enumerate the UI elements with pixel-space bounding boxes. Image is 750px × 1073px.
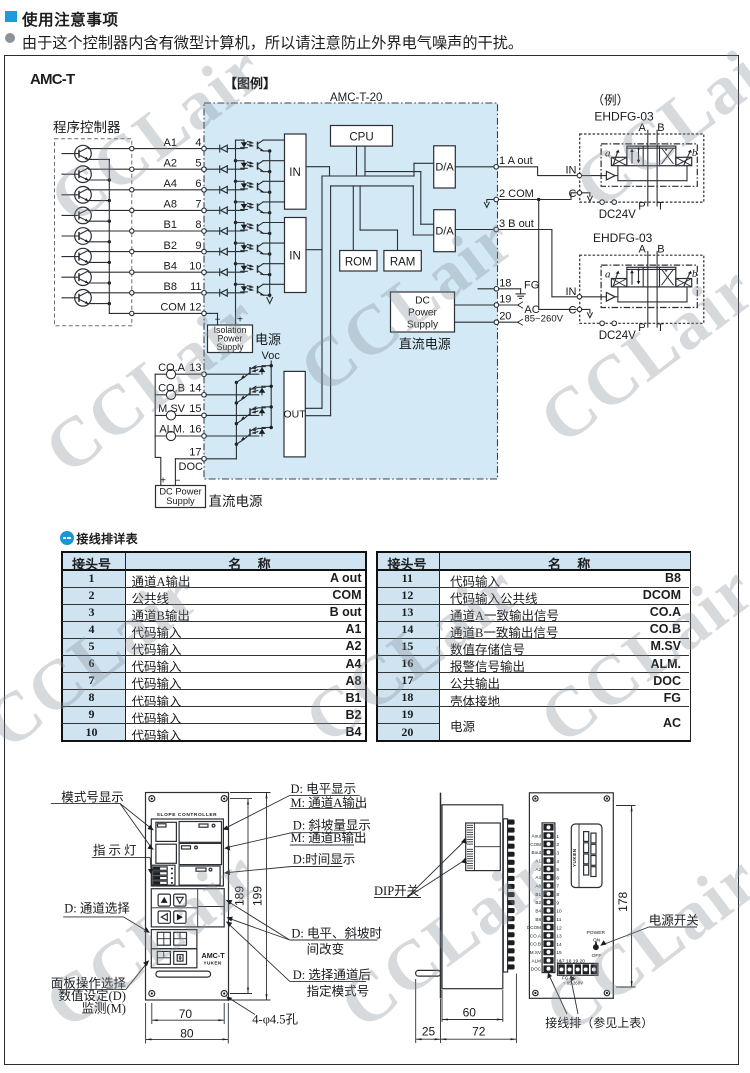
svg-text:IN: IN <box>566 165 577 177</box>
svg-text:数值设定(D): 数值设定(D) <box>59 988 126 1003</box>
svg-text:D/A: D/A <box>435 225 454 237</box>
svg-text:+: + <box>160 475 166 486</box>
svg-text:9: 9 <box>556 900 559 906</box>
svg-text:程序控制器: 程序控制器 <box>53 120 121 135</box>
svg-text:189: 189 <box>233 886 247 906</box>
svg-text:A8: A8 <box>535 884 541 889</box>
svg-text:85~260V: 85~260V <box>524 314 563 325</box>
svg-text:Supply: Supply <box>407 320 439 331</box>
svg-text:T: T <box>657 201 664 213</box>
svg-text:OFF: OFF <box>592 953 602 959</box>
svg-text:ALM.: ALM. <box>159 424 185 436</box>
svg-text:指示灯: 指示灯 <box>93 843 140 858</box>
svg-text:B2: B2 <box>535 900 541 905</box>
svg-text:3: 3 <box>556 850 559 856</box>
svg-text:B1: B1 <box>535 892 541 897</box>
svg-text:指定模式号: 指定模式号 <box>307 984 370 999</box>
svg-text:60: 60 <box>463 1006 477 1020</box>
svg-text:20: 20 <box>499 311 511 323</box>
svg-text:COM: COM <box>530 842 541 847</box>
svg-text:199: 199 <box>251 886 265 906</box>
svg-text:80: 80 <box>180 1026 194 1040</box>
svg-text:70: 70 <box>179 1007 193 1021</box>
svg-text:FG: FG <box>524 280 539 292</box>
svg-text:16: 16 <box>189 424 201 436</box>
svg-text:13: 13 <box>189 362 201 374</box>
svg-text:25: 25 <box>422 1025 436 1039</box>
svg-text:6: 6 <box>195 178 201 190</box>
svg-text:B8: B8 <box>164 281 177 293</box>
svg-text:18: 18 <box>499 277 511 289</box>
svg-text:b: b <box>692 268 698 280</box>
svg-text:DC24V: DC24V <box>599 330 636 342</box>
svg-text:a: a <box>605 148 611 160</box>
svg-text:YUKEN: YUKEN <box>204 961 222 966</box>
svg-text:7: 7 <box>195 199 201 211</box>
svg-text:直流电源: 直流电源 <box>399 337 451 352</box>
svg-text:B8: B8 <box>535 917 541 922</box>
svg-text:4: 4 <box>556 859 559 865</box>
svg-text:15: 15 <box>189 403 201 415</box>
svg-text:8: 8 <box>556 892 559 898</box>
svg-text:M.SV: M.SV <box>158 403 186 415</box>
svg-text:9: 9 <box>195 240 201 252</box>
svg-text:13: 13 <box>556 934 562 940</box>
svg-text:DC Power: DC Power <box>159 486 201 496</box>
svg-text:P: P <box>638 201 645 213</box>
svg-text:7: 7 <box>556 884 559 890</box>
svg-text:电源开关: 电源开关 <box>649 913 699 927</box>
svg-text:A2: A2 <box>164 157 177 169</box>
svg-text:2 COM: 2 COM <box>499 188 534 200</box>
svg-text:POWER: POWER <box>587 930 606 936</box>
svg-text:M: 通道B输出: M: 通道B输出 <box>291 830 367 845</box>
svg-text:B: B <box>657 243 664 255</box>
svg-text:C: C <box>569 304 577 316</box>
svg-text:COM: COM <box>160 302 186 314</box>
svg-text:2: 2 <box>556 842 559 848</box>
svg-text:4-φ4.5孔: 4-φ4.5孔 <box>252 1013 298 1027</box>
svg-text:A: A <box>639 243 647 255</box>
svg-text:D: 电平、斜坡时: D: 电平、斜坡时 <box>291 927 382 941</box>
svg-text:D:时间显示: D:时间显示 <box>293 853 356 867</box>
svg-text:12: 12 <box>556 925 562 931</box>
svg-text:P: P <box>638 322 645 334</box>
svg-text:B4: B4 <box>164 260 177 272</box>
svg-text:DOC: DOC <box>531 967 542 972</box>
svg-text:DOC: DOC <box>179 461 204 473</box>
svg-text:CO.A: CO.A <box>530 933 542 938</box>
svg-text:M: 通道A输出: M: 通道A输出 <box>291 795 368 810</box>
svg-text:10: 10 <box>556 909 562 915</box>
svg-text:模式号显示: 模式号显示 <box>61 790 124 804</box>
svg-text:B1: B1 <box>164 219 177 231</box>
svg-text:监测(M): 监测(M) <box>81 1002 125 1016</box>
svg-text:5: 5 <box>556 867 559 873</box>
svg-text:M.SV: M.SV <box>530 950 542 955</box>
svg-text:11: 11 <box>190 281 201 293</box>
svg-text:D/A: D/A <box>435 162 454 174</box>
svg-text:+: + <box>237 314 243 325</box>
svg-text:D: 通道选择: D: 通道选择 <box>64 901 130 915</box>
svg-text:ROM: ROM <box>345 257 372 269</box>
svg-text:CO.A: CO.A <box>158 362 186 374</box>
svg-text:DCOM: DCOM <box>527 925 541 930</box>
svg-text:A8: A8 <box>164 199 177 211</box>
svg-text:8: 8 <box>195 219 201 231</box>
svg-text:1: 1 <box>556 834 559 840</box>
svg-text:A: A <box>639 122 647 134</box>
svg-text:*: * <box>637 267 640 276</box>
svg-text:−: − <box>215 314 221 325</box>
svg-text:72: 72 <box>472 1025 486 1039</box>
svg-text:Supply: Supply <box>217 342 244 352</box>
svg-text:17: 17 <box>189 446 201 458</box>
svg-text:10: 10 <box>189 260 201 272</box>
svg-text:A2: A2 <box>535 867 541 872</box>
svg-text:A4: A4 <box>164 178 177 190</box>
svg-text:C: C <box>569 188 577 200</box>
svg-text:RAM: RAM <box>390 257 416 269</box>
svg-text:*: * <box>664 268 667 277</box>
svg-text:IN: IN <box>289 167 301 179</box>
svg-text:14: 14 <box>189 382 201 394</box>
svg-text:B2: B2 <box>164 240 177 252</box>
svg-text:4: 4 <box>195 137 201 149</box>
svg-text:14: 14 <box>556 942 562 948</box>
svg-text:A1: A1 <box>164 137 177 149</box>
svg-text:Bout: Bout <box>532 850 542 855</box>
svg-text:SLOPE CONTROLLER: SLOPE CONTROLLER <box>157 812 218 818</box>
svg-text:Voc: Voc <box>262 350 281 362</box>
svg-text:~ 85-260V: ~ 85-260V <box>563 980 583 985</box>
svg-text:IN: IN <box>289 251 301 263</box>
svg-text:D: 选择通道后: D: 选择通道后 <box>293 968 371 982</box>
svg-text:6: 6 <box>556 875 559 881</box>
svg-text:Power: Power <box>408 308 437 319</box>
svg-text:OUT: OUT <box>284 409 307 421</box>
svg-text:电源: 电源 <box>255 332 281 347</box>
svg-text:DC24V: DC24V <box>599 209 636 221</box>
svg-text:CO.B: CO.B <box>530 942 541 947</box>
svg-text:直流电源: 直流电源 <box>209 494 263 509</box>
svg-text:接线排（参见上表）: 接线排（参见上表） <box>545 1015 653 1030</box>
svg-text:3 B out: 3 B out <box>499 218 534 230</box>
svg-text:*: * <box>664 147 667 156</box>
svg-text:11: 11 <box>556 917 561 923</box>
svg-text:间改变: 间改变 <box>307 941 345 956</box>
svg-text:A1: A1 <box>535 859 541 864</box>
svg-text:（例）: （例） <box>592 94 630 108</box>
svg-text:A4: A4 <box>535 875 541 880</box>
svg-text:15: 15 <box>556 950 562 956</box>
svg-text:5: 5 <box>195 157 201 169</box>
svg-text:AMC-T: AMC-T <box>202 951 226 960</box>
svg-text:a: a <box>605 269 611 281</box>
svg-text:*: * <box>637 146 640 155</box>
svg-text:b: b <box>692 147 698 159</box>
svg-text:−: − <box>175 475 181 486</box>
svg-text:1 A out: 1 A out <box>499 155 533 167</box>
svg-text:12: 12 <box>189 302 201 314</box>
svg-text:T: T <box>657 322 664 334</box>
svg-text:178: 178 <box>616 891 630 911</box>
svg-text:IN: IN <box>566 286 577 298</box>
svg-text:B: B <box>657 122 664 134</box>
svg-text:CPU: CPU <box>349 132 373 144</box>
svg-text:YUKEN: YUKEN <box>572 848 577 867</box>
svg-text:DIP开关: DIP开关 <box>374 884 419 898</box>
svg-text:Supply: Supply <box>166 496 195 506</box>
svg-text:CO.B: CO.B <box>158 382 185 394</box>
svg-text:Aout: Aout <box>532 834 542 839</box>
svg-text:DC: DC <box>415 296 430 307</box>
svg-text:19: 19 <box>499 294 511 306</box>
svg-text:D: 电平显示: D: 电平显示 <box>291 782 357 796</box>
svg-text:ALM: ALM <box>532 958 542 963</box>
svg-text:B4: B4 <box>535 909 541 914</box>
